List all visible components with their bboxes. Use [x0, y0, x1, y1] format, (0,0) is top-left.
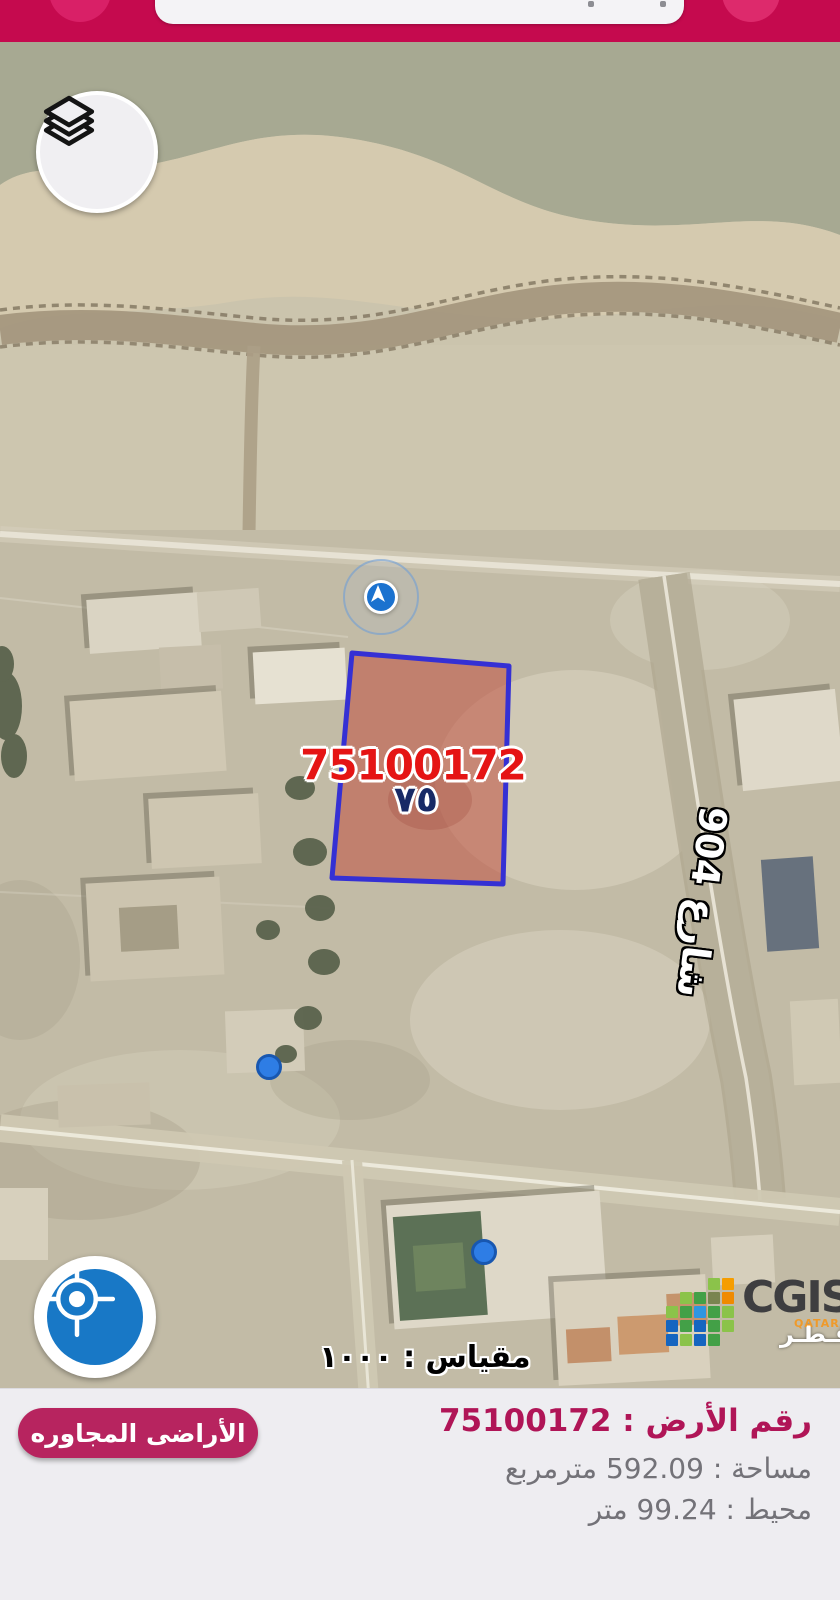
- my-location-button-inner: [47, 1269, 143, 1365]
- parcel-arabic-map-label: ٧٥: [394, 780, 438, 821]
- compass-marker[interactable]: [364, 580, 398, 614]
- map-point-marker[interactable]: [471, 1239, 497, 1265]
- cgis-logo-grid-icon: [666, 1278, 734, 1346]
- parcel-area-line: مساحة : 592.09 مترمربع: [439, 1452, 812, 1485]
- scale-label: مقياس : ١٠٠٠: [295, 1340, 555, 1375]
- map-point-marker[interactable]: [256, 1054, 282, 1080]
- parcel-info-panel: الأراضى المجاوره رقم الأرض : 75100172 مس…: [0, 1388, 840, 1600]
- mic-icon: [660, 1, 666, 7]
- search-icon: [588, 1, 594, 7]
- cgis-logo-qatar: QATAR: [794, 1318, 840, 1329]
- layers-icon: [40, 95, 98, 153]
- parcel-info-block: رقم الأرض : 75100172 مساحة : 592.09 مترم…: [439, 1403, 812, 1526]
- search-input[interactable]: [155, 0, 684, 24]
- parcel-perimeter-line: محيط : 99.24 متر: [439, 1493, 812, 1526]
- cgis-logo: CGIS قـطـر QATAR: [666, 1276, 840, 1346]
- satellite-map[interactable]: 75100172 ٧٥ شارع 904 مقياس : ١٠٠٠: [0, 0, 840, 1600]
- neighboring-lands-button[interactable]: الأراضى المجاوره: [18, 1408, 258, 1458]
- profile-circle-button[interactable]: [722, 0, 780, 22]
- my-location-button[interactable]: [34, 1256, 156, 1378]
- menu-circle-button[interactable]: [49, 0, 111, 22]
- top-app-bar: [0, 0, 840, 42]
- parcel-number-line: رقم الأرض : 75100172: [439, 1403, 812, 1439]
- layers-button[interactable]: [36, 91, 158, 213]
- cgis-logo-title: CGIS: [742, 1276, 840, 1320]
- app-screen: 75100172 ٧٥ شارع 904 مقياس : ١٠٠٠: [0, 0, 840, 1600]
- navigation-arrow-icon: [367, 583, 389, 605]
- crosshair-icon: [34, 1256, 120, 1342]
